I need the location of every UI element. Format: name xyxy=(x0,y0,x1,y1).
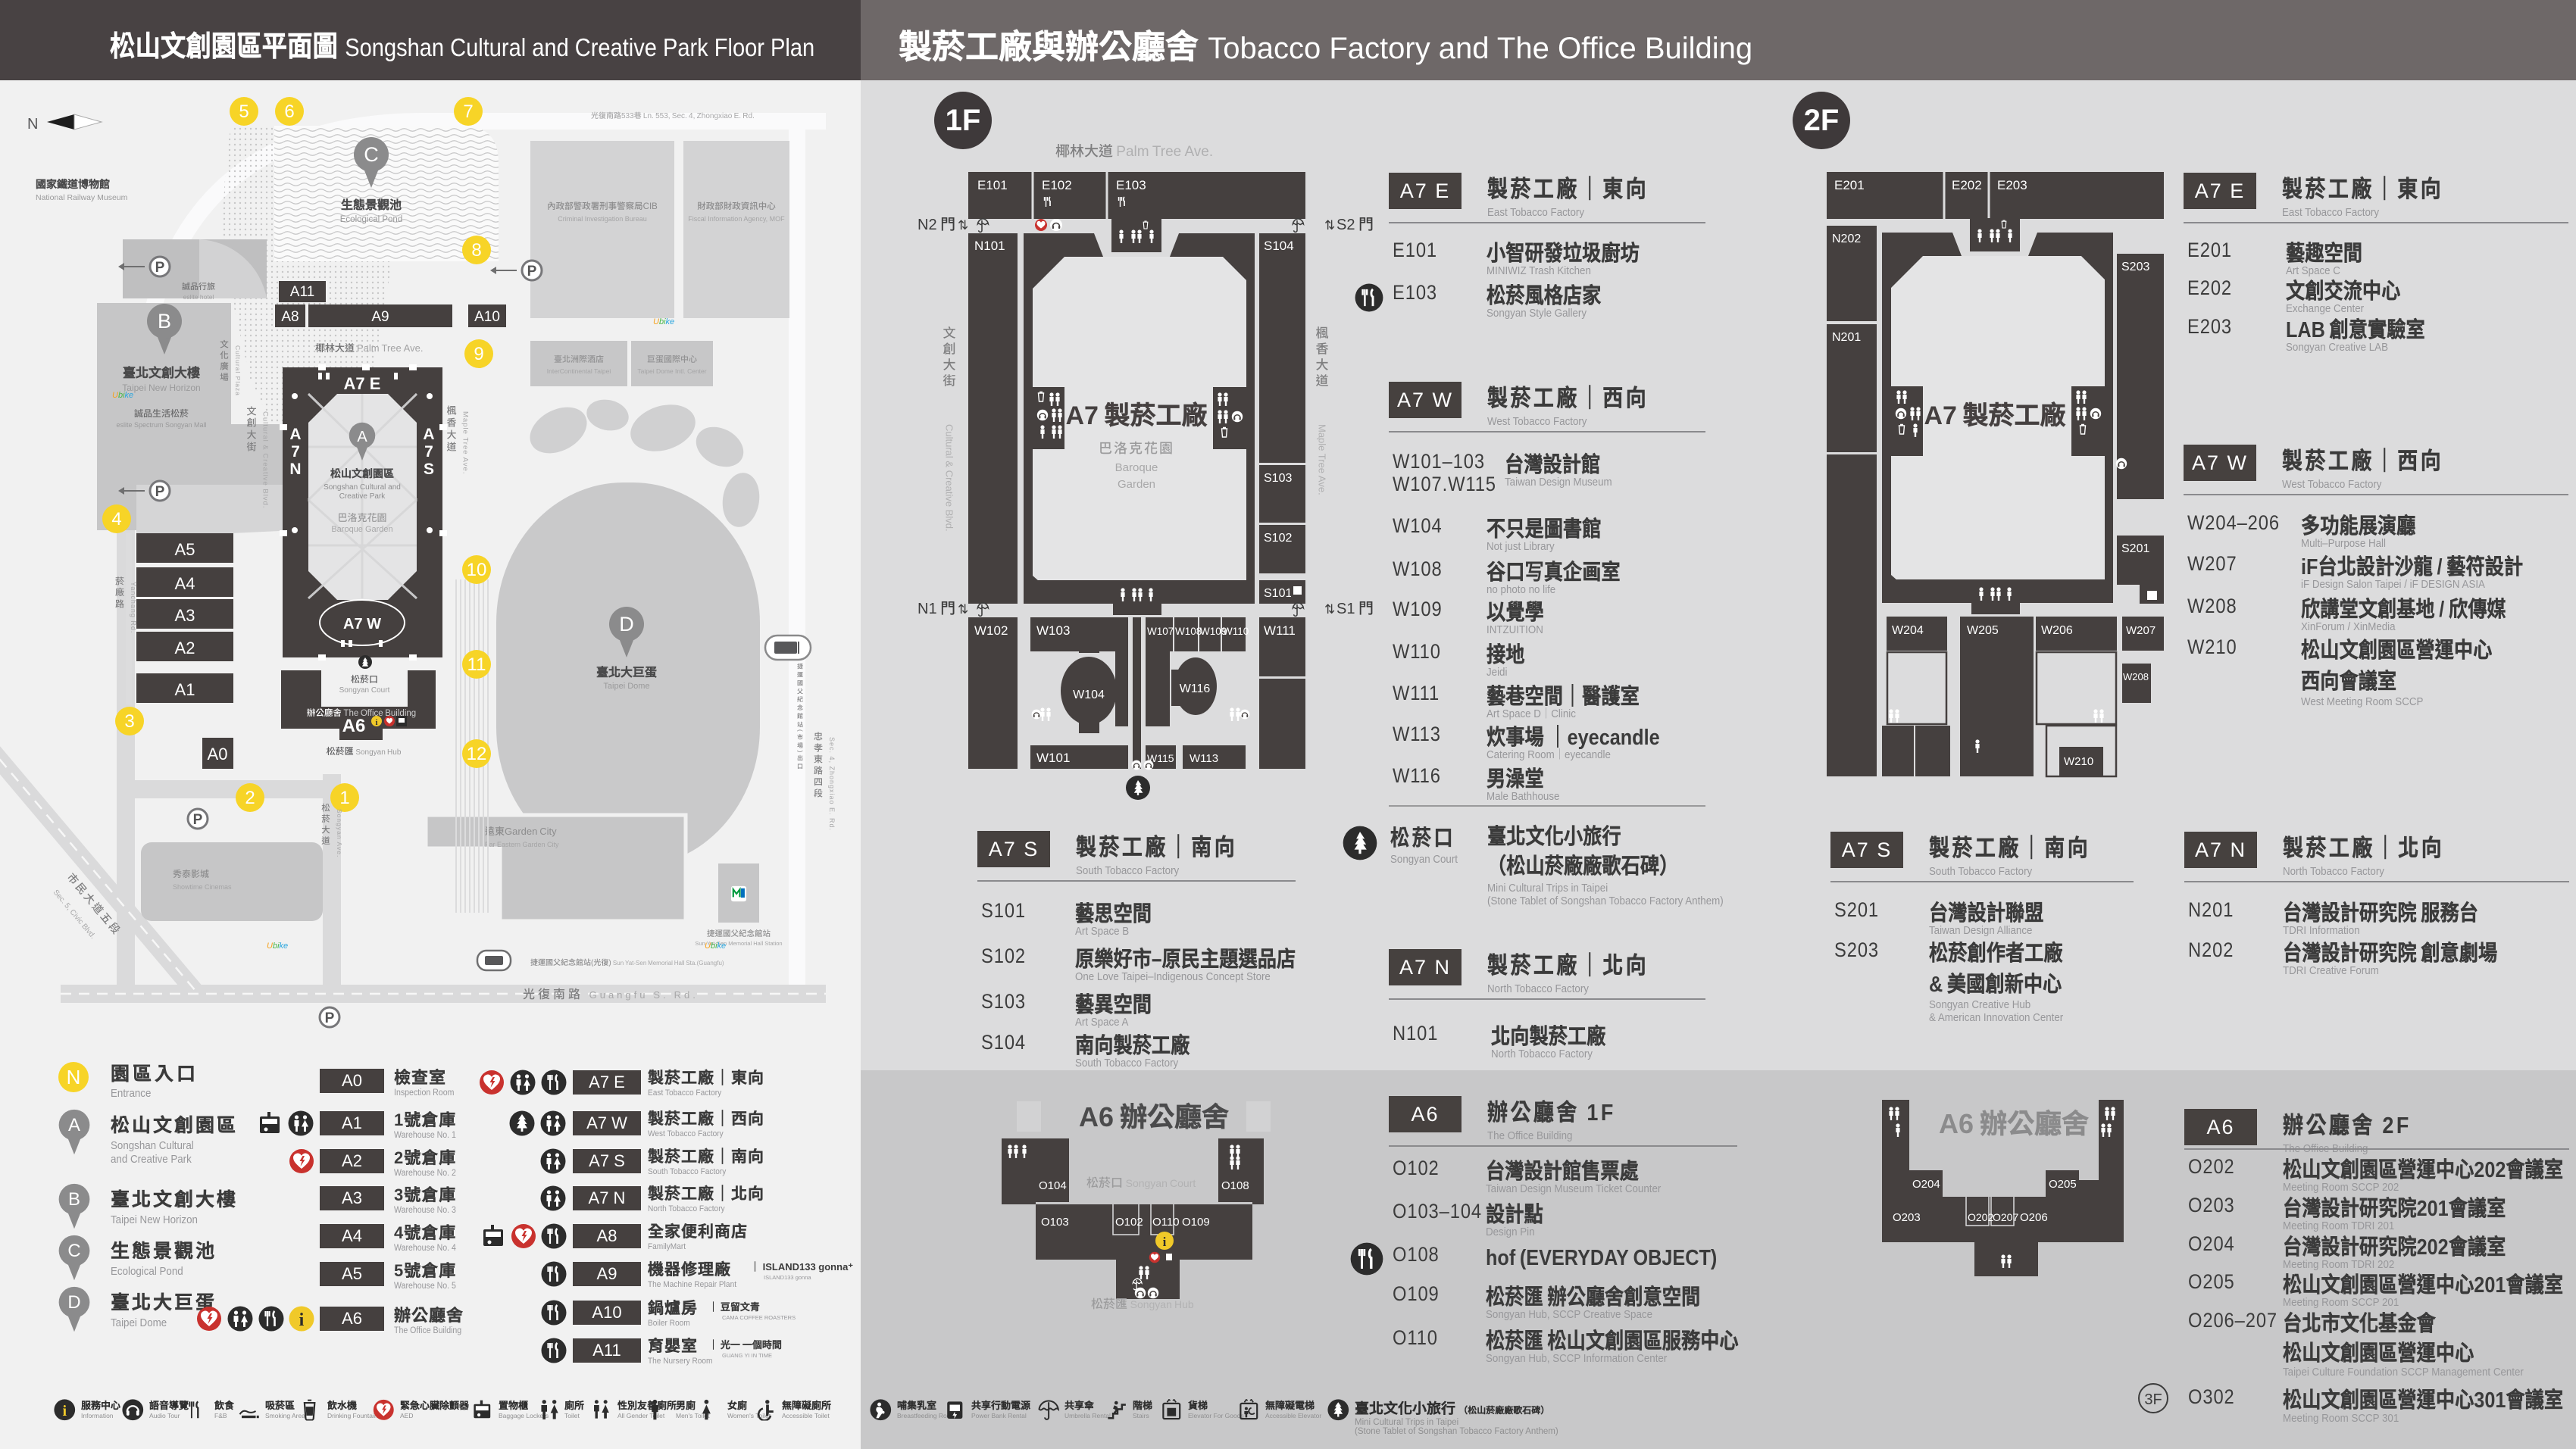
svg-text:6: 6 xyxy=(284,101,294,122)
svg-text:⇅: ⇅ xyxy=(1324,602,1335,617)
svg-text:A5: A5 xyxy=(175,540,195,559)
svg-text:N2 門: N2 門 xyxy=(918,212,955,234)
svg-text:8: 8 xyxy=(471,240,481,261)
svg-text:W111: W111 xyxy=(1264,623,1296,638)
svg-text:P: P xyxy=(527,264,537,279)
svg-text:9: 9 xyxy=(474,344,483,364)
svg-text:Creative Park: Creative Park xyxy=(339,492,386,501)
svg-text:A7S: A7S xyxy=(423,426,434,478)
svg-text:光復南路533巷 Ln. 553, Sec. 4, Zhon: 光復南路533巷 Ln. 553, Sec. 4, Zhongxiao E. R… xyxy=(591,109,755,120)
svg-text:A7 E: A7 E xyxy=(344,374,381,393)
svg-text:4: 4 xyxy=(111,509,121,529)
svg-text:O206: O206 xyxy=(2020,1211,2048,1224)
svg-text:2: 2 xyxy=(245,788,255,808)
svg-text:忠孝東路四段: 忠孝東路四段 xyxy=(812,731,825,799)
svg-text:W110: W110 xyxy=(1223,626,1249,637)
svg-text:A9: A9 xyxy=(371,309,389,325)
svg-text:W101: W101 xyxy=(1036,751,1070,765)
svg-text:捷運國父紀念館站: 捷運國父紀念館站 xyxy=(707,928,771,939)
svg-text:A6: A6 xyxy=(342,716,366,736)
svg-text:D: D xyxy=(619,613,634,635)
svg-text:Taipei New Horizon: Taipei New Horizon xyxy=(122,383,200,393)
svg-text:松菸匯 Songyan Hub: 松菸匯 Songyan Hub xyxy=(327,745,402,757)
svg-text:National Railway Museum: National Railway Museum xyxy=(36,193,128,202)
svg-text:P: P xyxy=(325,1010,335,1026)
svg-text:A8: A8 xyxy=(281,309,299,325)
svg-text:臺北洲際酒店: 臺北洲際酒店 xyxy=(554,353,604,365)
svg-text:N101: N101 xyxy=(974,239,1005,253)
svg-text:O205: O205 xyxy=(2049,1178,2077,1191)
svg-text:A1: A1 xyxy=(175,680,195,699)
svg-text:松菸口 Songyan Court: 松菸口 Songyan Court xyxy=(1086,1173,1196,1191)
svg-text:秀泰影城: 秀泰影城 xyxy=(173,867,209,880)
svg-text:⇅: ⇅ xyxy=(958,602,968,617)
svg-text:O203: O203 xyxy=(1893,1211,1921,1224)
svg-text:1: 1 xyxy=(339,788,349,808)
svg-text:InterContinental Taipei: InterContinental Taipei xyxy=(547,367,611,375)
svg-text:3: 3 xyxy=(124,711,134,732)
svg-text:A6 辦公廳舍: A6 辦公廳舍 xyxy=(1939,1102,2090,1141)
svg-text:Ubike: Ubike xyxy=(705,942,726,951)
svg-text:eslite Spectrum Songyan Mall: eslite Spectrum Songyan Mall xyxy=(116,421,206,429)
svg-text:S201: S201 xyxy=(2121,542,2149,555)
svg-text:A6 辦公廳舍: A6 辦公廳舍 xyxy=(1079,1095,1230,1135)
svg-text:文創大街: 文創大街 xyxy=(245,405,259,454)
svg-text:P: P xyxy=(155,260,165,276)
svg-text:O202: O202 xyxy=(1968,1211,1993,1223)
svg-text:Taipei Dome: Taipei Dome xyxy=(603,682,649,691)
svg-text:Criminal Investigation Bureau: Criminal Investigation Bureau xyxy=(558,215,647,223)
svg-text:D: D xyxy=(67,1292,80,1313)
svg-text:eslite hotel: eslite hotel xyxy=(183,293,214,301)
svg-text:A: A xyxy=(357,429,367,445)
svg-text:A7 W: A7 W xyxy=(343,616,381,632)
svg-text:W104: W104 xyxy=(1073,689,1105,701)
svg-text:Songshan Cultural and: Songshan Cultural and xyxy=(324,483,401,492)
svg-text:Maple Tree Ave.: Maple Tree Ave. xyxy=(1317,424,1328,495)
svg-text:S101: S101 xyxy=(1264,587,1292,600)
svg-text:Sec. 4, Zhongxiao E. Rd.: Sec. 4, Zhongxiao E. Rd. xyxy=(828,737,836,831)
svg-text:O207: O207 xyxy=(1993,1211,2018,1223)
svg-text:W107: W107 xyxy=(1147,626,1174,637)
svg-text:W210: W210 xyxy=(2064,755,2093,768)
svg-text:O109: O109 xyxy=(1182,1216,1210,1229)
svg-text:文創大街: 文創大街 xyxy=(940,326,959,389)
svg-text:Cultural & Creative Blvd.: Cultural & Creative Blvd. xyxy=(261,411,270,508)
svg-text:楓香大道: 楓香大道 xyxy=(1313,326,1332,389)
svg-text:Songyan Ave.: Songyan Ave. xyxy=(336,809,343,857)
svg-text:Baroque: Baroque xyxy=(1115,461,1158,474)
svg-text:松菸口: 松菸口 xyxy=(351,673,378,685)
svg-text:N201: N201 xyxy=(1832,331,1861,344)
svg-text:國家鐵道博物館: 國家鐵道博物館 xyxy=(36,176,110,192)
svg-text:S203: S203 xyxy=(2121,261,2149,273)
svg-text:楓香大道: 楓香大道 xyxy=(445,405,459,454)
svg-text:A0: A0 xyxy=(208,745,228,764)
svg-text:E103: E103 xyxy=(1116,178,1146,192)
svg-text:Yanchang Rd.: Yanchang Rd. xyxy=(130,582,137,633)
svg-text:Maple Tree Ave.: Maple Tree Ave. xyxy=(461,411,470,474)
svg-text:A7N: A7N xyxy=(289,426,301,478)
svg-text:A: A xyxy=(68,1115,80,1135)
svg-text:Ubike: Ubike xyxy=(267,942,288,951)
svg-text:W208: W208 xyxy=(2123,671,2149,682)
svg-text:Cultural Plaza: Cultural Plaza xyxy=(234,345,242,396)
svg-text:A7 製菸工廠: A7 製菸工廠 xyxy=(1065,395,1208,432)
svg-text:A11: A11 xyxy=(290,284,314,300)
svg-text:⇅: ⇅ xyxy=(1324,218,1335,233)
svg-text:W103: W103 xyxy=(1036,623,1070,638)
svg-text:O103: O103 xyxy=(1041,1216,1069,1229)
svg-text:C: C xyxy=(364,143,379,166)
svg-text:遠東Garden City: 遠東Garden City xyxy=(485,823,557,838)
svg-text:W113: W113 xyxy=(1190,752,1218,765)
svg-text:誠品生活松菸: 誠品生活松菸 xyxy=(134,407,189,420)
svg-text:A4: A4 xyxy=(175,574,195,593)
svg-text:臺北文創大樓: 臺北文創大樓 xyxy=(123,362,200,381)
svg-text:P: P xyxy=(155,484,165,500)
svg-text:A3: A3 xyxy=(175,606,195,625)
svg-text:椰林大道 Palm Tree Ave.: 椰林大道 Palm Tree Ave. xyxy=(1055,140,1213,161)
svg-text:S1 門: S1 門 xyxy=(1336,596,1374,618)
svg-text:11: 11 xyxy=(467,654,486,675)
svg-text:10: 10 xyxy=(467,560,487,580)
svg-text:O102: O102 xyxy=(1115,1216,1143,1229)
svg-text:Far Eastern Garden City: Far Eastern Garden City xyxy=(485,841,559,848)
svg-text:O204: O204 xyxy=(1912,1178,1940,1191)
svg-text:W207: W207 xyxy=(2126,624,2156,637)
svg-text:⇅: ⇅ xyxy=(958,218,968,233)
svg-text:12: 12 xyxy=(467,744,487,764)
svg-text:W102: W102 xyxy=(974,623,1008,638)
svg-text:菸廠路: 菸廠路 xyxy=(114,576,127,610)
svg-text:Taipei Dome Intl. Center: Taipei Dome Intl. Center xyxy=(637,367,706,375)
svg-text:O108: O108 xyxy=(1221,1179,1249,1192)
svg-text:i: i xyxy=(299,1310,305,1330)
svg-text:臺北大巨蛋: 臺北大巨蛋 xyxy=(596,662,658,680)
svg-text:Ecological Pond: Ecological Pond xyxy=(340,215,402,224)
svg-text:財政部財政資訊中心: 財政部財政資訊中心 xyxy=(697,200,776,212)
svg-text:N1 門: N1 門 xyxy=(918,596,955,618)
svg-text:Ubike: Ubike xyxy=(653,317,674,326)
svg-text:7: 7 xyxy=(463,101,473,122)
svg-text:Ubike: Ubike xyxy=(112,391,133,400)
svg-text:Songyan Court: Songyan Court xyxy=(339,686,390,695)
svg-text:E101: E101 xyxy=(977,174,1008,193)
svg-text:P: P xyxy=(193,812,203,828)
svg-text:S104: S104 xyxy=(1264,239,1294,253)
svg-text:捷運國父紀念館站(市場)出口: 捷運國父紀念館站(市場)出口 xyxy=(796,663,805,771)
svg-text:W206: W206 xyxy=(2041,624,2073,637)
svg-text:Showtime Cinemas: Showtime Cinemas xyxy=(173,883,232,891)
svg-text:Baroque Garden: Baroque Garden xyxy=(331,525,392,534)
svg-text:巴洛克花園: 巴洛克花園 xyxy=(1099,438,1174,457)
svg-text:N: N xyxy=(27,116,38,133)
svg-text:S103: S103 xyxy=(1264,472,1292,485)
svg-text:松菸大道: 松菸大道 xyxy=(320,803,332,847)
svg-text:A2: A2 xyxy=(175,639,195,657)
svg-text:捷運國父紀念館站(光復) Sun Yat-Sen Memor: 捷運國父紀念館站(光復) Sun Yat-Sen Memorial Hall S… xyxy=(530,956,724,967)
svg-text:O110: O110 xyxy=(1152,1216,1180,1229)
svg-text:E102: E102 xyxy=(1042,178,1072,192)
svg-text:Fiscal Information Agency, MOF: Fiscal Information Agency, MOF xyxy=(688,215,785,223)
svg-text:W116: W116 xyxy=(1180,682,1211,695)
svg-text:松山文創園區: 松山文創園區 xyxy=(330,466,394,481)
svg-text:Garden: Garden xyxy=(1118,478,1155,491)
svg-text:W108: W108 xyxy=(1175,626,1202,637)
svg-text:光復南路 Guangfu S. Rd.: 光復南路 Guangfu S. Rd. xyxy=(523,984,699,1002)
svg-text:W205: W205 xyxy=(1967,624,1999,637)
svg-text:Cultural & Creative Blvd.: Cultural & Creative Blvd. xyxy=(944,424,955,532)
svg-text:i: i xyxy=(62,1403,67,1419)
svg-text:i: i xyxy=(375,718,377,727)
svg-text:誠品行旅: 誠品行旅 xyxy=(182,280,215,292)
svg-text:內政部警政署刑事警察局CIB: 內政部警政署刑事警察局CIB xyxy=(547,200,658,212)
svg-text:生態景觀池: 生態景觀池 xyxy=(341,195,402,213)
svg-text:巴洛克花園: 巴洛克花園 xyxy=(337,510,386,524)
svg-text:i: i xyxy=(1163,1235,1167,1249)
svg-text:5: 5 xyxy=(239,101,249,122)
svg-text:S102: S102 xyxy=(1264,532,1292,545)
svg-text:O104: O104 xyxy=(1039,1179,1067,1192)
svg-text:巨蛋國際中心: 巨蛋國際中心 xyxy=(647,353,697,365)
svg-text:C: C xyxy=(67,1241,80,1261)
svg-text:椰林大道 Palm Tree Ave.: 椰林大道 Palm Tree Ave. xyxy=(315,340,423,354)
svg-text:S2 門: S2 門 xyxy=(1336,212,1374,234)
svg-text:文化廣場: 文化廣場 xyxy=(218,339,230,383)
svg-text:B: B xyxy=(68,1189,80,1210)
svg-text:A10: A10 xyxy=(474,309,500,325)
svg-text:B: B xyxy=(158,310,171,333)
